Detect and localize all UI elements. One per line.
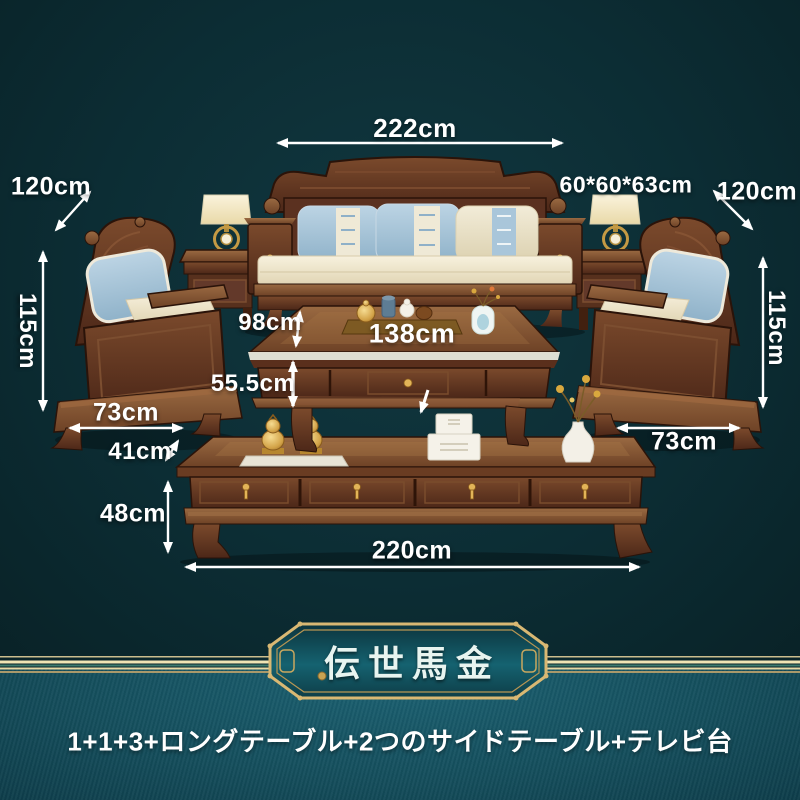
dim-label-right-chair-depth: 120cm [717,180,797,205]
dim-label-side-table-size: 60*60*63cm [560,174,693,197]
dim-label-right-chair-height: 115cm [764,290,788,366]
dim-label-tv-stand-top-depth: 41cm [108,440,171,464]
sofa-pillows [298,204,538,262]
set-description: 1+1+3+ロングテーブル+2つのサイドテーブル+テレビ台 [67,722,732,759]
dim-label-coffee-table-front-height: 98cm [238,311,301,335]
dim-label-tv-stand-length: 220cm [372,539,452,564]
dim-label-left-chair-width: 73cm [93,401,159,426]
dim-label-left-chair-depth: 120cm [11,175,91,200]
dim-label-coffee-table-height: 55.5cm [211,372,295,396]
dim-label-sofa-width: 222cm [373,115,456,141]
dim-label-coffee-table-length: 138cm [369,321,456,348]
tissue-box [428,414,480,460]
dim-label-tv-stand-height: 48cm [100,502,166,527]
dim-label-right-chair-width: 73cm [651,430,717,455]
banner-title: 伝世馬金 [324,635,500,687]
dim-label-left-chair-height: 115cm [15,293,39,369]
three-seat-sofa [244,157,586,327]
